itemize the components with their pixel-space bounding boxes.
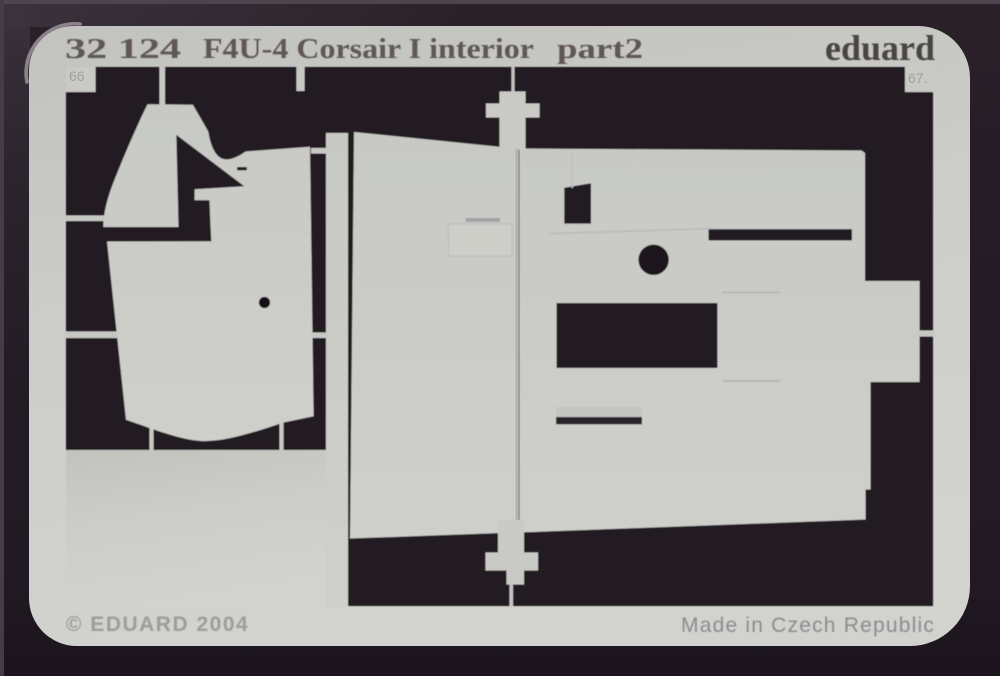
svg-text:Made in Czech Republic: Made in Czech Republic	[681, 614, 935, 637]
svg-text:part2: part2	[557, 34, 643, 65]
svg-text:32 124: 32 124	[65, 34, 181, 65]
svg-text:67.: 67.	[908, 70, 927, 86]
svg-text:F4U-4 Corsair I interior: F4U-4 Corsair I interior	[203, 34, 534, 65]
svg-text:66: 66	[69, 68, 85, 84]
svg-text:eduard: eduard	[825, 28, 935, 68]
svg-text:© EDUARD 2004: © EDUARD 2004	[66, 613, 249, 636]
